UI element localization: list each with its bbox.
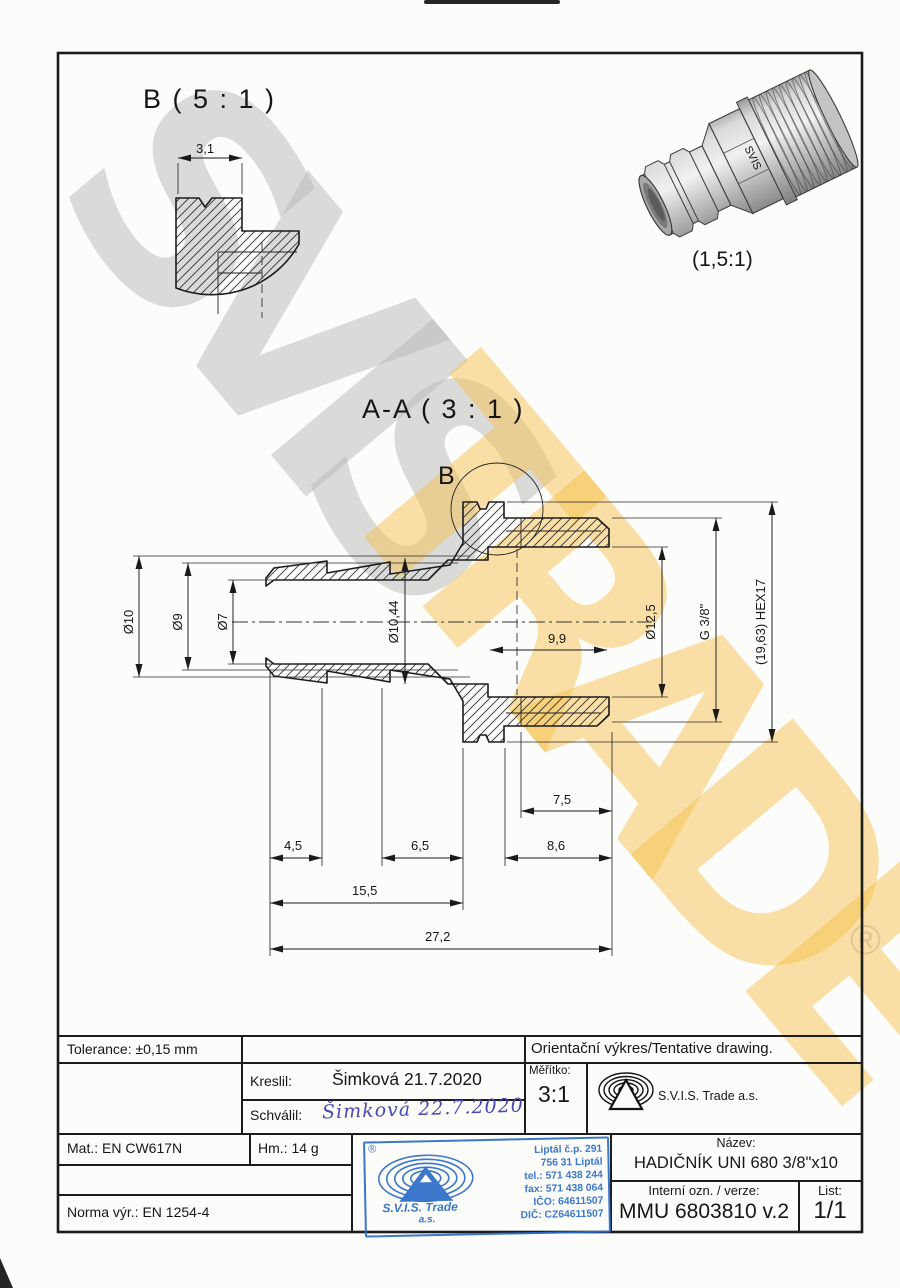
sheet-label: List: (798, 1183, 862, 1198)
company-name: S.V.I.S. Trade a.s. (658, 1089, 758, 1103)
section-upper-wall (266, 502, 609, 586)
dim-hex17: (19,63) HEX17 (753, 579, 768, 665)
company-stamp: ® S.V.I.S. Trade a.s. Liptál č.p. 291 75… (363, 1136, 611, 1237)
dim-l155: 15,5 (352, 883, 377, 898)
tb-line (351, 1133, 353, 1232)
internal-id-value: MMU 6803810 v.2 (610, 1200, 798, 1224)
scan-artifact-top (424, 0, 560, 4)
drawn-label: Kreslil: (250, 1073, 292, 1089)
internal-id-label: Interní ozn. / verze: (610, 1183, 798, 1198)
stamp-company-suffix: a.s. (419, 1214, 436, 1225)
name-value: HADIČNÍK UNI 680 3/8"x10 (610, 1154, 862, 1173)
dim-depth99: 9,9 (548, 631, 566, 646)
company-logo (599, 1073, 653, 1109)
approved-label: Schválil: (250, 1107, 302, 1123)
section-aa-view: A-A ( 3 : 1 ) B Ø10 Ø9 Ø7 Ø10,44 9,9 (121, 394, 778, 956)
standard-field: Norma výr.: EN 1254-4 (67, 1204, 209, 1220)
stamp-address-line: DIČ: CZ64611507 (520, 1208, 603, 1223)
detail-b-view: B ( 5 : 1 ) 3,1 (143, 84, 299, 318)
detail-b-marker: B (438, 462, 455, 490)
name-label: Název: (610, 1136, 862, 1150)
detail-b-title: B ( 5 : 1 ) (143, 84, 276, 114)
iso-render: SVIS (623, 64, 865, 260)
tb-line (586, 1062, 588, 1133)
dim-d1044: Ø10,44 (386, 601, 401, 644)
tb-line (241, 1035, 243, 1133)
stamp-address: Liptál č.p. 291 756 31 Liptál tel.: 571 … (519, 1144, 604, 1224)
section-lower-wall (266, 658, 609, 742)
tb-line (249, 1133, 251, 1164)
tentative-note: Orientační výkres/Tentative drawing. (531, 1040, 773, 1057)
dim-d125: Ø12,5 (643, 604, 658, 639)
tb-line (58, 1194, 351, 1196)
stamp-company: S.V.I.S. Trade (382, 1200, 458, 1216)
dim-l86: 8,6 (547, 838, 565, 853)
dim-g38: G 3/8" (697, 603, 712, 640)
tb-line (58, 1062, 862, 1064)
tb-line (58, 1133, 862, 1135)
tb-line (610, 1180, 862, 1182)
tb-line (524, 1035, 526, 1133)
scanned-technical-drawing: { "detail_b": { "title": "B ( 5 : 1 )", … (0, 0, 900, 1288)
dim-od9: Ø9 (170, 613, 185, 630)
tb-line (58, 1035, 862, 1037)
weight-field: Hm.: 14 g (258, 1140, 319, 1156)
dim-l45: 4,5 (284, 838, 302, 853)
dim-od7: Ø7 (215, 613, 230, 630)
dim-r75: 7,5 (553, 792, 571, 807)
detail-b-section (176, 198, 299, 295)
section-title: A-A ( 3 : 1 ) (362, 394, 525, 424)
sheet-value: 1/1 (798, 1197, 862, 1225)
iso-scale-label: (1,5:1) (692, 248, 753, 271)
dim-od10: Ø10 (121, 610, 136, 635)
scale-label: Měřítko: (529, 1065, 571, 1077)
drawing-canvas: B ( 5 : 1 ) 3,1 SVIS (1,5:1 (0, 0, 900, 1288)
scale-value: 3:1 (538, 1081, 570, 1108)
detail-b-width-dim: 3,1 (196, 141, 214, 156)
material-field: Mat.: EN CW617N (67, 1140, 182, 1156)
tolerance-field: Tolerance: ±0,15 mm (67, 1041, 198, 1057)
tb-line (58, 1164, 351, 1166)
dim-l272: 27,2 (425, 929, 450, 944)
dim-l65: 6,5 (411, 838, 429, 853)
drawn-value: Šimková 21.7.2020 (332, 1069, 482, 1090)
